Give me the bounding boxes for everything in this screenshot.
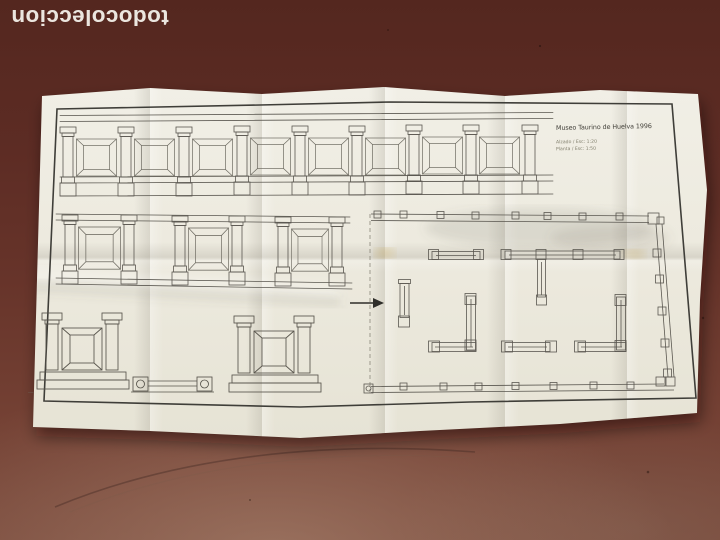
plan-sheet-photo — [0, 0, 720, 540]
photo-scene: todocoleccion — [0, 0, 720, 540]
plan-scale-line-1: Alzado / Esc: 1:20 — [556, 140, 597, 146]
sheet-corner-mark: —· — [28, 390, 35, 396]
plan-scale-line-2: Planta / Esc: 1:50 — [556, 147, 596, 153]
